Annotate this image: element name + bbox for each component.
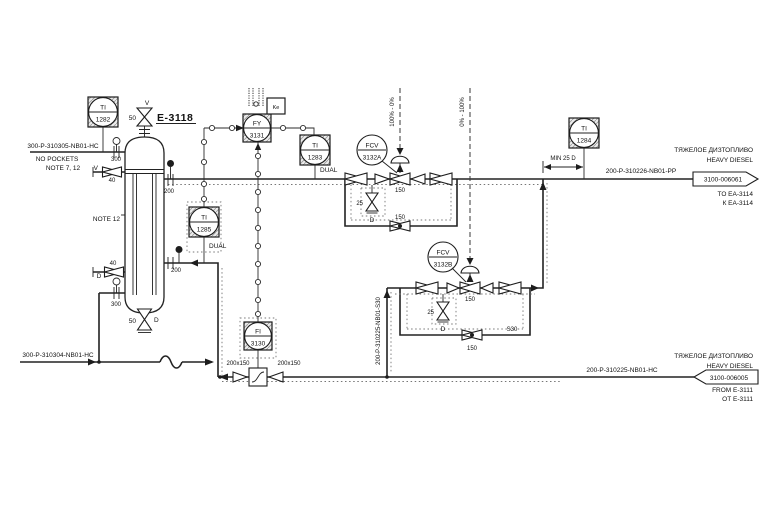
valve-size: 40 xyxy=(109,178,116,184)
split-range-label: 0% - 100% xyxy=(460,97,466,127)
drain-mark: D xyxy=(97,273,102,280)
nozzle-size: 300 xyxy=(111,157,122,163)
valve-size: 150 xyxy=(395,188,406,194)
valve-size: 150 xyxy=(467,346,478,352)
connector-id: 3100-006061 xyxy=(704,177,743,184)
line-note: NO POCKETS xyxy=(36,156,79,163)
spec-break-circle xyxy=(113,278,120,285)
test-connection xyxy=(176,246,183,253)
instrument-tag: 1282 xyxy=(96,117,111,124)
line-number: 200-P-310225-NB01-HC xyxy=(586,367,657,374)
reducer-size: 200x150 xyxy=(226,361,250,367)
spec-break-label: S30 xyxy=(507,327,518,333)
line-number: 200-P-310226-NB01-PP xyxy=(606,168,676,175)
instrument-function: FCV xyxy=(366,143,380,150)
ke-label: Ke xyxy=(273,105,280,111)
equipment-tag: E-3118 xyxy=(157,112,193,124)
reducer-size: 200x150 xyxy=(277,361,301,367)
connector-id: 3100-006005 xyxy=(710,375,749,382)
instrument-tag: 1283 xyxy=(308,155,323,162)
drain-mark: D xyxy=(441,326,446,333)
pid-canvas: V 50 E-3118 NOTE 12 300 V 40 200 200 40 … xyxy=(0,0,780,515)
medium-en: HEAVY DIESEL xyxy=(707,363,754,370)
dual-note: DUAL xyxy=(209,243,227,250)
nozzle-size: 300 xyxy=(111,302,122,308)
drain-mark: D xyxy=(370,217,375,224)
valve-size: 50 xyxy=(129,318,137,325)
line-number: 300-P-310304-NB01-HC xyxy=(22,352,93,359)
instrument-tag: 3132A xyxy=(363,155,382,162)
valve-size: 150 xyxy=(395,215,406,221)
nozzle-size: 200 xyxy=(171,268,182,274)
instrument-function: TI xyxy=(100,105,106,112)
line-note: NOTE 7, 12 xyxy=(46,165,81,172)
destination-ru: К EA-3114 xyxy=(723,200,754,207)
source-ru: ОТ E-3111 xyxy=(722,396,753,403)
instrument-function: FCV xyxy=(437,250,451,257)
valve-size: 50 xyxy=(129,115,137,122)
line-number-vertical: 200-P-310225-NB01-S30 xyxy=(376,296,382,364)
test-connection xyxy=(167,160,174,167)
spec-break-circle xyxy=(113,138,120,145)
medium-en: HEAVY DIESEL xyxy=(707,157,754,164)
instrument-function: FY xyxy=(253,121,262,128)
valve-size: 25 xyxy=(427,310,434,316)
valve-size: 40 xyxy=(110,261,117,267)
instrument-tag: 3130 xyxy=(251,341,266,348)
instrument-function: TI xyxy=(201,215,207,222)
drain-mark: D xyxy=(154,317,159,324)
instrument-tag: 1284 xyxy=(577,138,592,145)
min-run-label: MIN 25 D xyxy=(550,156,576,162)
instrument-function: TI xyxy=(581,126,587,133)
valve-size: 150 xyxy=(465,297,476,303)
instrument-tag: 3132B xyxy=(434,262,453,269)
pid-drawing: V 50 E-3118 NOTE 12 300 V 40 200 200 40 … xyxy=(0,0,780,515)
vent-mark: V xyxy=(94,165,99,172)
valve-size: 25 xyxy=(356,201,363,207)
medium-ru: ТЯЖЕЛОЕ ДИЗТОПЛИВО xyxy=(674,353,753,360)
instrument-function: TI xyxy=(312,143,318,150)
destination-en: TO EA-3114 xyxy=(717,191,753,198)
line-number: 300-P-310305-NB01-HC xyxy=(27,143,98,150)
instrument-function: FI xyxy=(255,329,261,336)
vent-mark: V xyxy=(145,100,150,107)
source-en: FROM E-3111 xyxy=(712,387,753,394)
split-range-label: 100% - 0% xyxy=(390,97,396,127)
instrument-tag: 1285 xyxy=(197,227,212,234)
background xyxy=(0,0,780,515)
note-12: NOTE 12 xyxy=(93,216,120,223)
nozzle-size: 200 xyxy=(164,189,175,195)
medium-ru: ТЯЖЕЛОЕ ДИЗТОПЛИВО xyxy=(674,147,753,154)
dual-note: DUAL xyxy=(320,167,338,174)
instrument-tag: 3131 xyxy=(250,133,265,140)
